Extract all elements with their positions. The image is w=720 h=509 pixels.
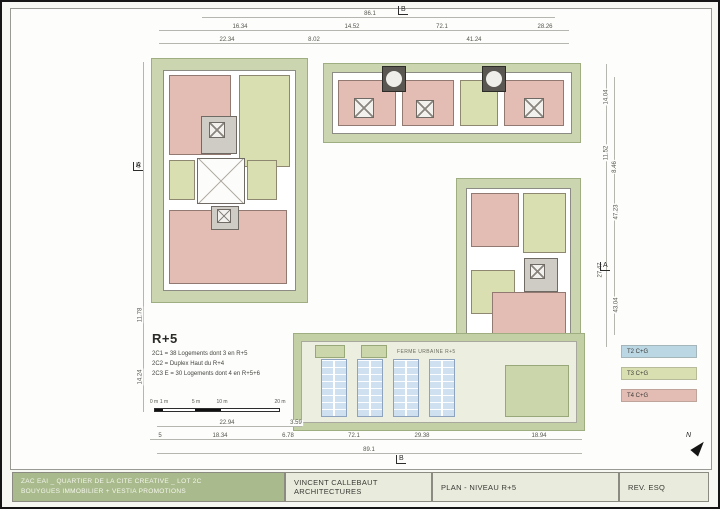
apartment-unit-t4 xyxy=(492,292,566,334)
drawing-sheet: FERME URBAINE R+5 86.1 16.34 14.52 72.1 … xyxy=(0,0,720,509)
elevator-oval xyxy=(386,71,402,87)
scale-segment xyxy=(155,409,163,411)
plan-title-box: PLAN - NIVEAU R+5 xyxy=(432,472,619,502)
north-label: N xyxy=(686,432,691,439)
scale-bar: 0 m 1 m 5 m 10 m 20 m xyxy=(154,399,290,419)
greenhouse xyxy=(393,359,419,417)
elevator-oval xyxy=(486,71,502,87)
section-mark: B xyxy=(398,6,408,15)
dimension-line xyxy=(202,17,555,18)
central-patio-void xyxy=(197,158,245,204)
revision-box: REV. ESQ xyxy=(619,472,709,502)
skylight xyxy=(524,98,544,118)
dim-label: 29.38 xyxy=(413,433,430,439)
greenhouse xyxy=(321,359,347,417)
building-top-left xyxy=(152,59,307,302)
note-line: 2C2 = Duplex Haut du R+4 xyxy=(152,359,260,369)
dimension-line xyxy=(159,30,569,31)
dim-label: 11.78 xyxy=(137,307,143,324)
elevator-core xyxy=(382,66,406,92)
elevator-core xyxy=(482,66,506,92)
urban-farm-roof: FERME URBAINE R+5 xyxy=(294,334,584,430)
dim-label: 22.34 xyxy=(218,37,235,43)
scale-label: 20 m xyxy=(274,399,285,405)
scale-label: 0 m xyxy=(150,399,158,405)
dim-label: 28.26 xyxy=(536,24,553,30)
apartment-unit-t4 xyxy=(471,193,519,247)
dim-label: 18.34 xyxy=(211,433,228,439)
dim-label: 86.1 xyxy=(363,11,377,17)
project-title-box: ZAC EAI _ QUARTIER DE LA CITE CREATIVE _… xyxy=(12,472,285,502)
dim-label: 22.94 xyxy=(218,420,235,426)
greenhouse xyxy=(357,359,383,417)
title-block: ZAC EAI _ QUARTIER DE LA CITE CREATIVE _… xyxy=(12,472,709,502)
north-arrow: N xyxy=(684,432,714,464)
legend-item-t3: T3 C+G xyxy=(621,367,697,380)
dim-label: 11.52 xyxy=(603,145,609,162)
skylight xyxy=(530,264,545,279)
scale-bar-rule xyxy=(154,408,280,412)
architect-box: VINCENT CALLEBAUT ARCHITECTURES xyxy=(285,472,432,502)
skylight xyxy=(209,122,225,138)
dim-label: 72.1 xyxy=(347,433,361,439)
section-mark: A xyxy=(600,262,610,271)
level-heading: R+5 xyxy=(152,331,260,346)
north-arrow-icon xyxy=(690,439,707,457)
planting-bed-large xyxy=(505,365,569,417)
section-mark: A xyxy=(133,162,143,171)
level-notes: R+5 2C1 = 38 Logements dont 3 en R+5 2C2… xyxy=(152,331,260,380)
note-line: 2C1 = 38 Logements dont 3 en R+5 xyxy=(152,349,260,359)
dimension-line xyxy=(157,426,302,427)
dim-label: 14.52 xyxy=(343,24,360,30)
apartment-unit-t3 xyxy=(523,193,566,253)
urban-farm-label: FERME URBAINE R+5 xyxy=(397,349,456,355)
building-mid-right xyxy=(457,179,580,347)
greenhouse xyxy=(429,359,455,417)
dim-label: 8.02 xyxy=(307,37,321,43)
scale-label: 5 m xyxy=(192,399,200,405)
scale-label: 1 m xyxy=(160,399,168,405)
dim-label: 16.34 xyxy=(231,24,248,30)
project-line-1: ZAC EAI _ QUARTIER DE LA CITE CREATIVE _… xyxy=(21,477,202,487)
dimension-line xyxy=(143,62,144,412)
unit-type-legend: T2 C+G T3 C+G T4 C+G xyxy=(621,345,697,411)
dim-label: 14.24 xyxy=(138,368,144,385)
scale-label: 10 m xyxy=(216,399,227,405)
planting-bed xyxy=(361,345,387,358)
dimension-line xyxy=(159,43,569,44)
dim-label: 3.59 xyxy=(289,420,303,426)
dim-label: 72.1 xyxy=(435,24,449,30)
dimension-line xyxy=(150,439,582,440)
dim-label: 14.04 xyxy=(604,88,610,105)
scale-segment xyxy=(195,409,221,411)
dim-label: 89.1 xyxy=(362,447,376,453)
legend-item-t4: T4 C+G xyxy=(621,389,697,402)
dim-label: 18.94 xyxy=(530,433,547,439)
building-top-right xyxy=(324,64,580,142)
apartment-unit-t3 xyxy=(239,75,290,167)
dim-label: 41.24 xyxy=(465,37,482,43)
apartment-unit-t3 xyxy=(247,160,277,200)
skylight xyxy=(416,100,434,118)
dim-label: 8.46 xyxy=(612,160,618,174)
apartment-unit-t3 xyxy=(169,160,195,200)
dimension-line xyxy=(606,64,607,347)
planting-bed xyxy=(315,345,345,358)
section-mark: B xyxy=(396,455,406,464)
dim-label: 43.04 xyxy=(614,296,620,313)
legend-item-t2: T2 C+G xyxy=(621,345,697,358)
note-line: 2C3 E = 30 Logements dont 4 en R+5+6 xyxy=(152,369,260,379)
dim-label: 47.23 xyxy=(614,203,620,220)
dim-label: 6.78 xyxy=(281,433,295,439)
dim-label: 5 xyxy=(157,433,162,439)
skylight xyxy=(217,209,231,223)
dimension-line xyxy=(157,453,582,454)
skylight xyxy=(354,98,374,118)
project-line-2: BOUYGUES IMMOBILIER + VESTIA PROMOTIONS xyxy=(21,487,186,497)
